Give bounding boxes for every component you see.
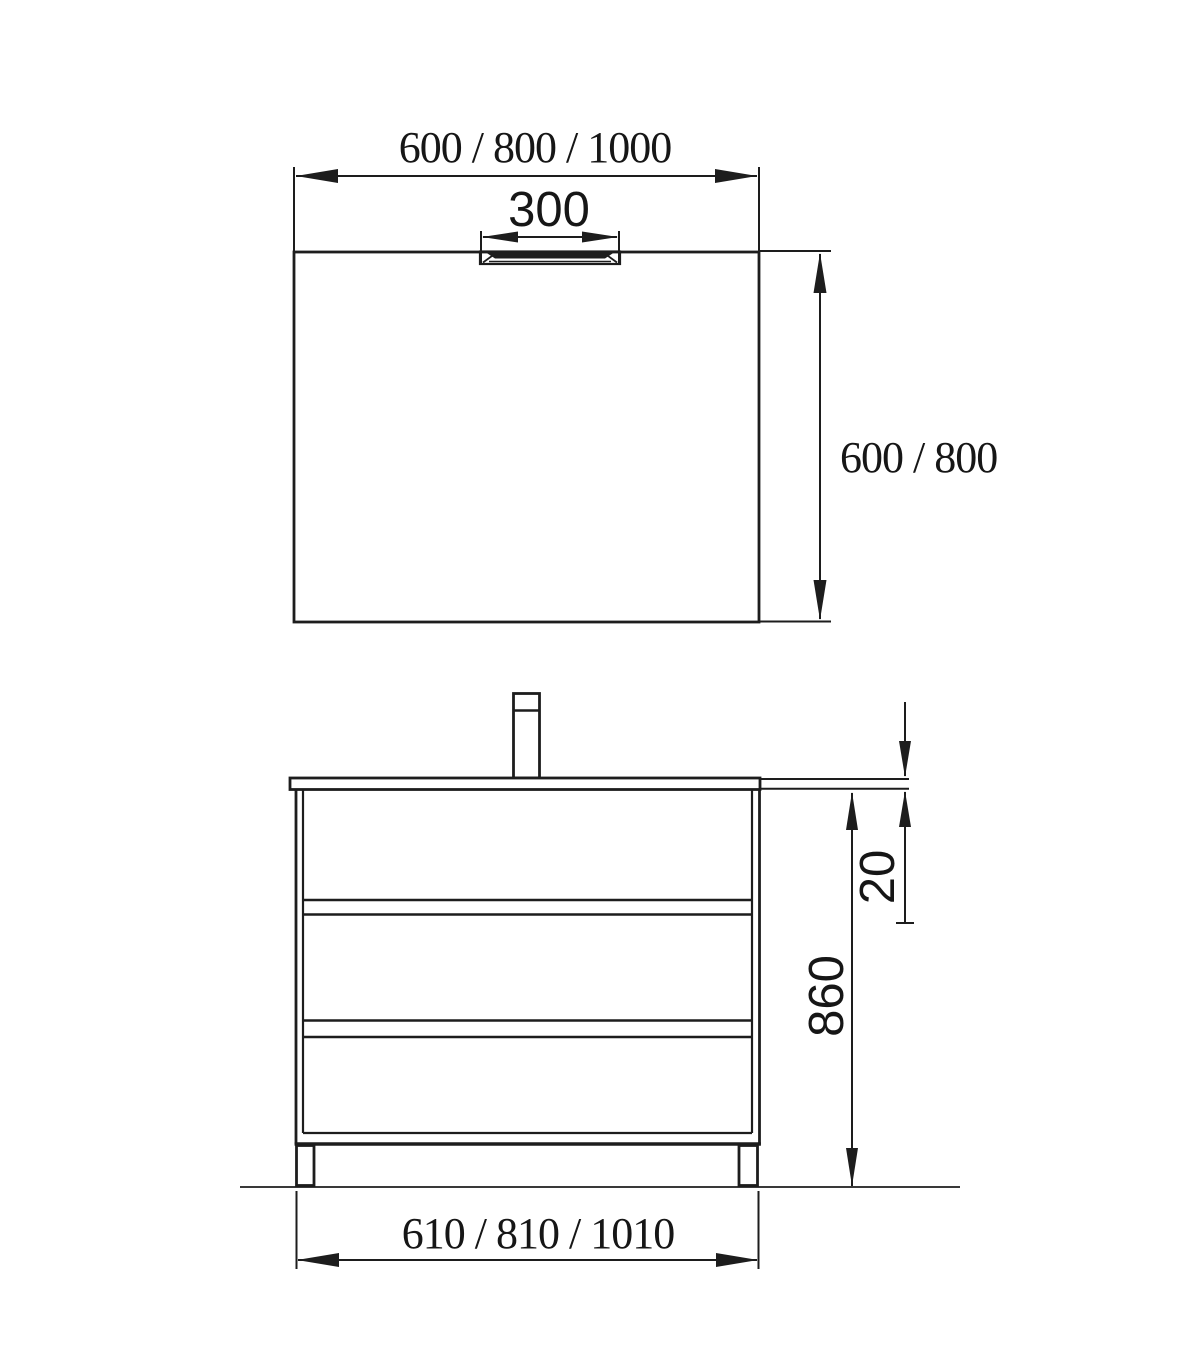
arrowhead-down-icon xyxy=(899,741,911,777)
mirror-height-dimension: 600 / 800 xyxy=(759,251,997,622)
arrowhead-right-icon xyxy=(716,1253,758,1267)
countertop-thickness-dimension: 20 xyxy=(851,702,914,923)
arrowhead-left-icon xyxy=(482,232,518,243)
arrowhead-down-icon xyxy=(846,1148,858,1186)
arrowhead-left-icon xyxy=(296,169,338,183)
countertop-thickness-label: 20 xyxy=(851,850,905,905)
arrowhead-left-icon xyxy=(297,1253,339,1267)
drawing-svg: 600 / 800 / 1000 300 600 / 800 xyxy=(0,0,1200,1372)
mirror-width-label: 600 / 800 / 1000 xyxy=(399,123,671,172)
cabinet-height-label: 860 xyxy=(800,955,854,1037)
cabinet-width-label: 610 / 810 / 1010 xyxy=(402,1209,674,1258)
leg-right xyxy=(739,1146,758,1186)
light-width-label: 300 xyxy=(508,183,590,237)
countertop xyxy=(290,778,760,790)
cabinet-width-dimension: 610 / 810 / 1010 xyxy=(297,1191,759,1269)
arrowhead-right-icon xyxy=(582,232,618,243)
leg-left xyxy=(297,1146,315,1186)
mirror-height-label: 600 / 800 xyxy=(840,433,997,482)
light-fixture-bar xyxy=(486,253,614,259)
mirror-front-view xyxy=(294,252,759,623)
cabinet-height-dimension: 860 xyxy=(800,792,858,1186)
faucet xyxy=(514,694,540,779)
vanity-technical-drawing: 600 / 800 / 1000 300 600 / 800 xyxy=(0,0,1200,1372)
arrowhead-right-icon xyxy=(715,169,757,183)
arrowhead-up-icon xyxy=(846,792,858,830)
arrowhead-up-icon xyxy=(814,253,827,293)
mirror-outline xyxy=(294,252,759,622)
arrowhead-down-icon xyxy=(814,580,827,620)
